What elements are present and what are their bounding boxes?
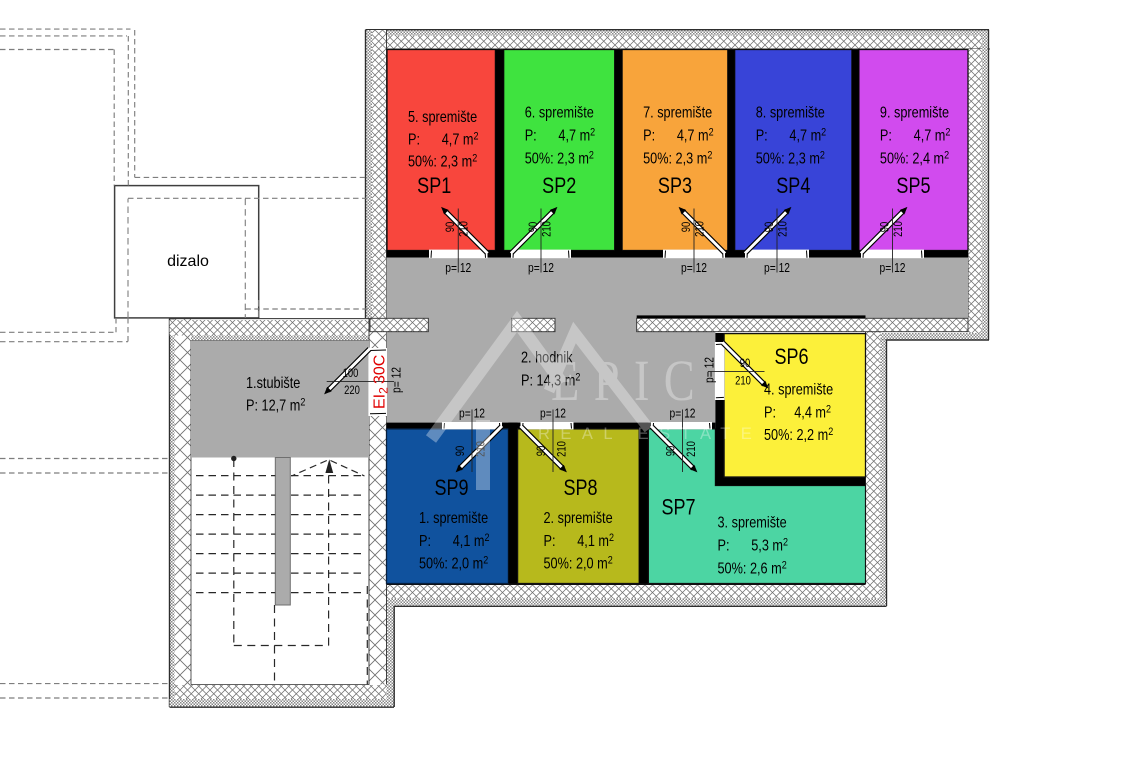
svg-text:4,1 m2: 4,1 m2 [577,532,614,550]
svg-text:p= 12: p= 12 [528,262,554,275]
svg-text:50%: 2,4 m2: 50%: 2,4 m2 [880,150,950,168]
svg-text:4,1 m2: 4,1 m2 [453,532,490,550]
svg-text:50%: 2,3 m2: 50%: 2,3 m2 [525,150,595,168]
svg-text:210: 210 [555,441,568,457]
svg-text:P:: P: [880,127,892,144]
svg-text:9. spremište: 9. spremište [880,104,949,121]
svg-text:P:: P: [408,131,420,148]
svg-text:4. spremište: 4. spremište [764,381,833,398]
svg-text:p= 12: p= 12 [764,262,790,275]
svg-text:50%: 2,3 m2: 50%: 2,3 m2 [756,150,826,168]
svg-text:90: 90 [535,446,548,457]
svg-text:50%: 2,0 m2: 50%: 2,0 m2 [419,555,489,573]
svg-text:90: 90 [444,222,457,233]
svg-text:p= 12: p= 12 [459,408,485,421]
svg-text:210: 210 [693,221,706,237]
svg-text:P:: P: [525,127,537,144]
svg-text:p= 12: p= 12 [445,262,471,275]
svg-text:90: 90 [740,357,751,370]
svg-text:1.stubište: 1.stubište [246,375,300,392]
svg-text:50%: 2,2 m2: 50%: 2,2 m2 [764,426,834,444]
svg-text:90: 90 [763,222,776,233]
svg-text:dizalo: dizalo [167,253,209,270]
svg-text:90: 90 [664,446,677,457]
svg-text:SP2: SP2 [542,174,576,198]
svg-text:210: 210 [685,441,698,457]
svg-text:p= 12: p= 12 [880,262,906,275]
svg-text:90: 90 [527,222,540,233]
svg-text:P:: P: [764,404,776,421]
svg-text:P:: P: [718,537,730,554]
svg-text:90: 90 [878,222,891,233]
svg-text:210: 210 [458,221,471,237]
svg-text:4,7 m2: 4,7 m2 [558,127,595,145]
svg-text:210: 210 [735,374,751,387]
svg-text:3. spremište: 3. spremište [718,514,787,531]
svg-text:210: 210 [540,221,553,237]
svg-text:P: 12,7 m2: P: 12,7 m2 [246,397,306,415]
svg-text:EPIC: EPIC [551,349,709,413]
svg-text:50%: 2,6 m2: 50%: 2,6 m2 [718,560,788,578]
svg-text:1. spremište: 1. spremište [419,510,488,527]
svg-text:6. spremište: 6. spremište [525,104,594,121]
svg-text:SP5: SP5 [896,174,930,198]
svg-text:5,3 m2: 5,3 m2 [751,537,788,555]
svg-text:100: 100 [343,367,359,380]
svg-text:SP9: SP9 [434,476,468,500]
svg-text:4,4 m2: 4,4 m2 [794,404,831,422]
svg-text:4,7 m2: 4,7 m2 [914,127,951,145]
svg-text:90: 90 [680,222,693,233]
svg-text:SP3: SP3 [658,174,692,198]
svg-text:SP6: SP6 [774,345,808,369]
svg-text:P:: P: [756,127,768,144]
svg-text:5. spremište: 5. spremište [408,109,477,126]
svg-text:p= 12: p= 12 [390,367,403,393]
svg-text:8. spremište: 8. spremište [756,104,825,121]
svg-text:50%: 2,3 m2: 50%: 2,3 m2 [643,150,713,168]
svg-text:P:: P: [544,533,556,550]
svg-text:SP1: SP1 [417,174,451,198]
svg-text:50%: 2,3 m2: 50%: 2,3 m2 [408,153,478,171]
svg-text:210: 210 [892,221,905,237]
svg-text:4,7 m2: 4,7 m2 [789,127,826,145]
svg-text:p= 12: p= 12 [681,262,707,275]
svg-text:2. spremište: 2. spremište [544,510,613,527]
svg-text:4,7 m2: 4,7 m2 [442,131,479,149]
svg-text:SP8: SP8 [563,476,597,500]
svg-text:7. spremište: 7. spremište [643,104,712,121]
svg-text:210: 210 [776,221,789,237]
svg-text:50%: 2,0 m2: 50%: 2,0 m2 [544,555,614,573]
svg-text:90: 90 [454,446,467,457]
svg-text:220: 220 [344,384,360,397]
svg-text:P:: P: [643,127,655,144]
svg-text:SP7: SP7 [661,496,695,520]
svg-text:4,7 m2: 4,7 m2 [677,127,714,145]
svg-text:P:: P: [419,533,431,550]
svg-text:SP4: SP4 [776,174,810,198]
svg-text:EI2 30C: EI2 30C [372,355,391,409]
svg-text:REAL ESTATE: REAL ESTATE [538,425,762,443]
